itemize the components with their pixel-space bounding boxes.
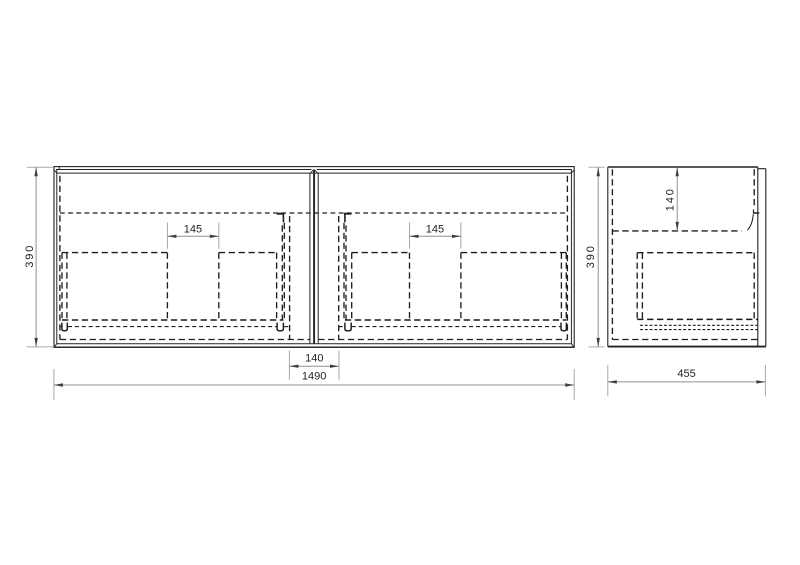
svg-text:145: 145 [184, 223, 202, 235]
svg-text:390: 390 [24, 244, 36, 268]
svg-text:1490: 1490 [302, 370, 326, 382]
svg-text:390: 390 [585, 244, 597, 268]
svg-text:145: 145 [426, 223, 444, 235]
svg-text:140: 140 [305, 353, 323, 365]
svg-text:455: 455 [677, 368, 695, 380]
svg-text:140: 140 [665, 187, 677, 211]
